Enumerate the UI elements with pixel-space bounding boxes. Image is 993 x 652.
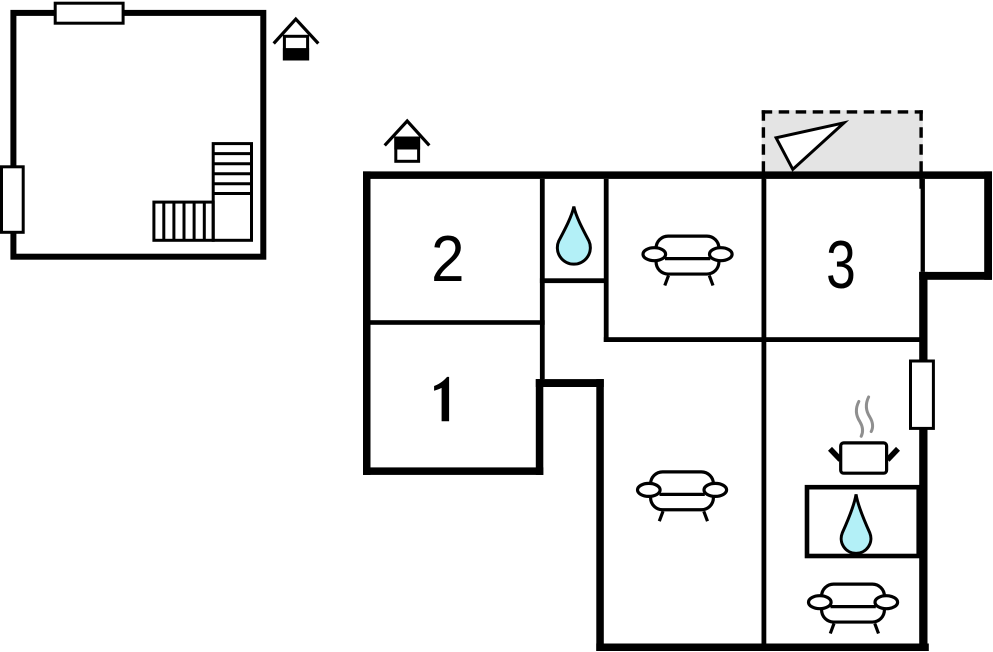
svg-text:2: 2 (431, 224, 464, 295)
svg-text:3: 3 (826, 227, 856, 303)
